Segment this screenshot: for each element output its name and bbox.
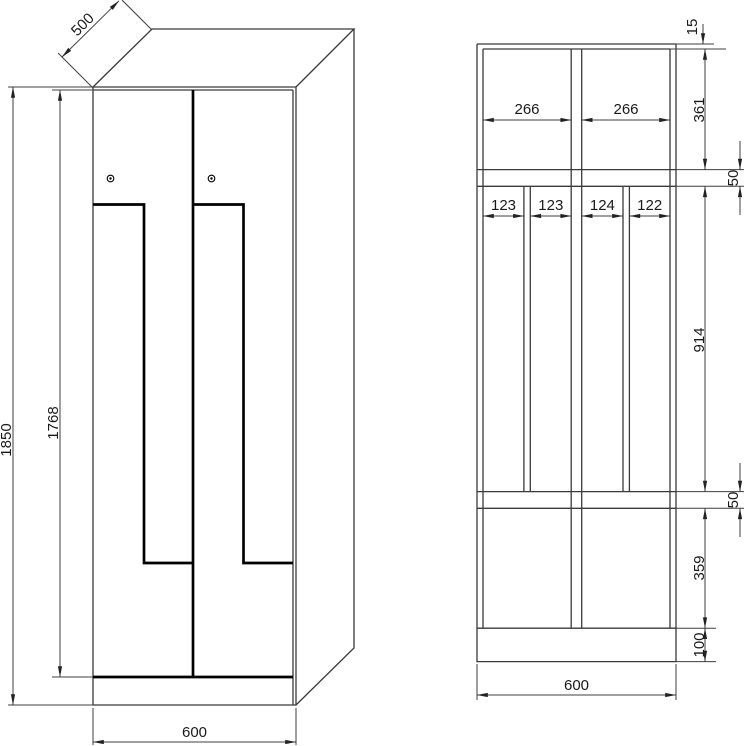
dim-door-height: 1768: [45, 90, 93, 677]
dim-depth-ext-1: [58, 53, 93, 88]
dim-depth-label: 500: [68, 10, 98, 40]
locker-technical-drawing: 500 1850 1768 600: [0, 0, 744, 746]
dim-front-width-label: 600: [182, 724, 207, 741]
dim-door-height-label: 1768: [45, 406, 62, 439]
plinth: [477, 628, 676, 661]
technical-drawing-canvas: 500 1850 1768 600: [0, 0, 744, 746]
dim-col-2-label: 123: [538, 197, 563, 214]
dim-top-panel: 15: [684, 19, 703, 44]
cabinet-outline: [93, 29, 354, 705]
z-doors: [93, 90, 293, 677]
z-cut-left: [93, 205, 193, 564]
lock-left-pin-icon: [109, 177, 111, 179]
dim-height-chain: 361 914 359 100: [691, 49, 708, 662]
dim-middle-height-label: 914: [691, 327, 708, 352]
dim-shelf-top-label: 50: [725, 170, 742, 187]
dim-col-4-label: 122: [637, 197, 662, 214]
dim-front-width: 600: [93, 708, 296, 745]
dim-section-width-label: 600: [564, 677, 589, 694]
z-cut-right: [193, 205, 293, 564]
dim-section-width: 600: [477, 664, 676, 700]
section-structure: [477, 44, 676, 662]
top-face: [93, 29, 354, 87]
front-view: 500 1850 1768 600: [0, 0, 354, 745]
dim-shelves: 50 50: [725, 141, 742, 537]
dim-top-width-2-label: 266: [613, 101, 638, 118]
dim-plinth-label: 100: [691, 632, 708, 657]
dim-shelf-bottom-label: 50: [725, 492, 742, 509]
dim-depth-ext-2: [122, 0, 152, 30]
dim-total-height-label: 1850: [0, 423, 15, 456]
side-face: [296, 29, 354, 705]
dim-top-panel-label: 15: [684, 19, 701, 36]
lock-right-pin-icon: [210, 177, 212, 179]
dim-top-compartment-label: 361: [691, 97, 708, 122]
dim-col-3-label: 124: [590, 197, 615, 214]
dim-column-widths: 123 123 124 122: [483, 197, 670, 216]
dim-total-height: 1850: [0, 87, 93, 705]
dim-top-width-1-label: 266: [514, 101, 539, 118]
dim-top-widths: 266 266: [483, 101, 670, 120]
section-view: 266 266 123 123 124 122: [477, 19, 744, 700]
front-face: [93, 87, 296, 705]
dim-col-1-label: 123: [491, 197, 516, 214]
dim-bottom-compartment-label: 359: [691, 555, 708, 580]
